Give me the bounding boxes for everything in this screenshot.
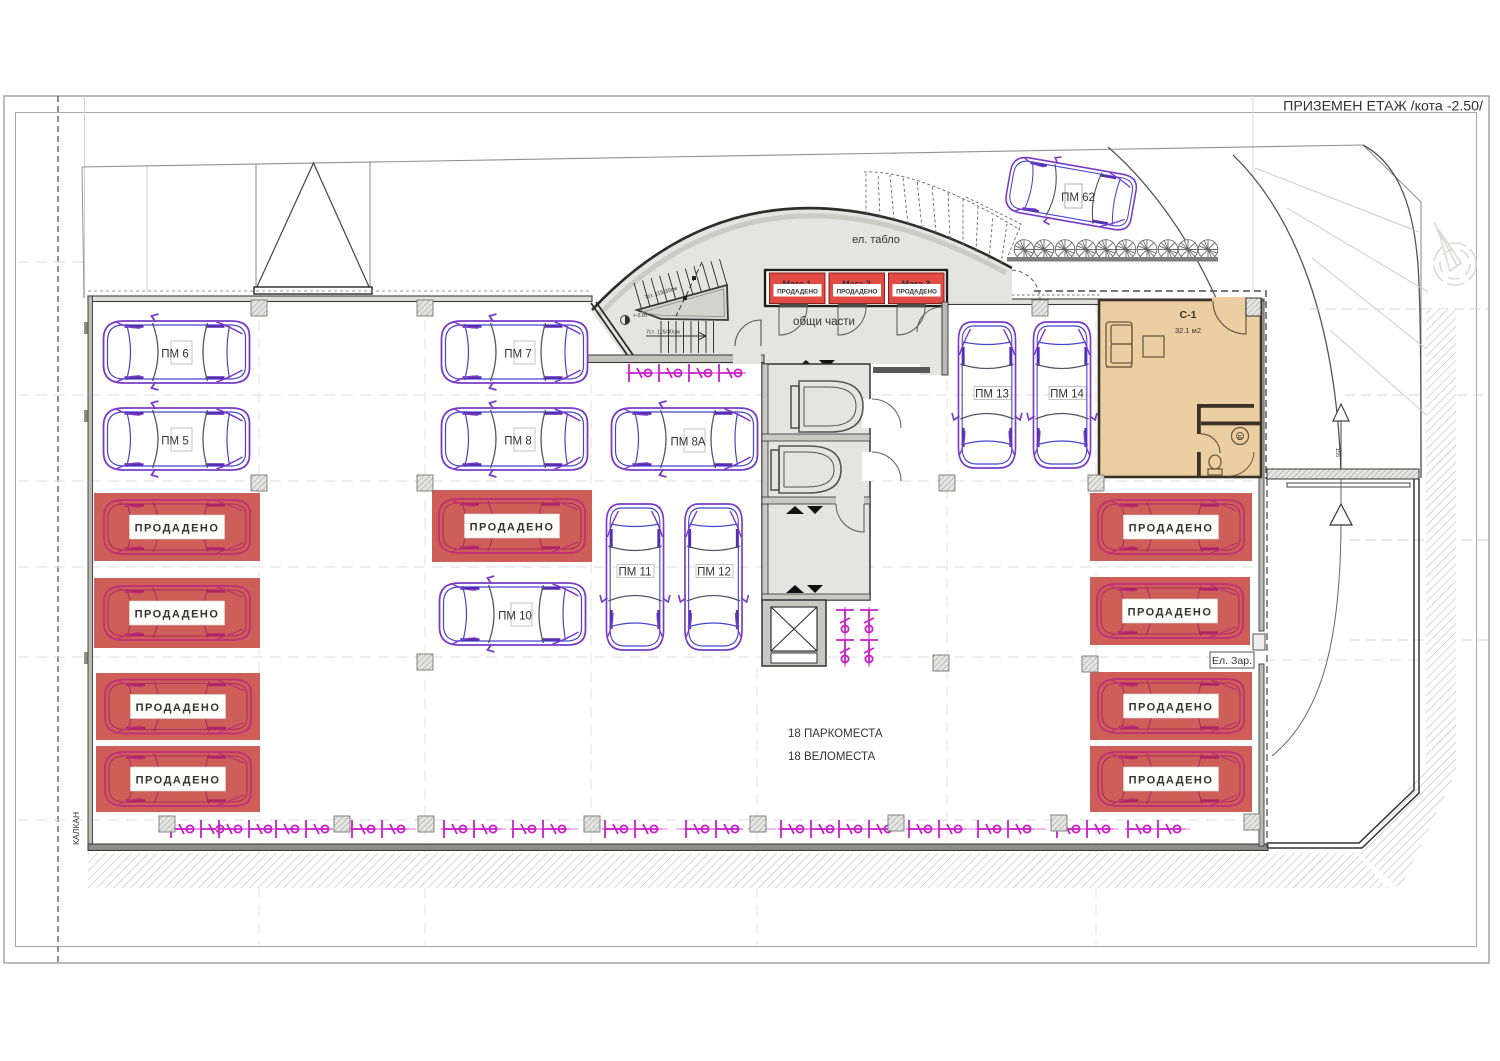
svg-text:ПМ 13: ПМ 13 [975, 389, 1009, 401]
svg-text:Ел. Зар.: Ел. Зар. [1212, 655, 1252, 667]
svg-text:ПРОДАДЕНО: ПРОДАДЕНО [135, 609, 220, 621]
svg-text:ПРОДАДЕНО: ПРОДАДЕНО [777, 289, 818, 296]
svg-text:ПМ 12: ПМ 12 [697, 567, 731, 579]
svg-text:7ст. 115/30см: 7ст. 115/30см [646, 330, 680, 336]
svg-text:КАЛКАН: КАЛКАН [71, 812, 81, 845]
svg-text:155: 155 [1334, 448, 1340, 457]
svg-text:ПРОДАДЕНО: ПРОДАДЕНО [136, 702, 221, 714]
svg-text:ПРОДАДЕНО: ПРОДАДЕНО [470, 522, 555, 534]
svg-text:ПМ 10: ПМ 10 [498, 611, 532, 623]
svg-text:+-0.00: +-0.00 [633, 313, 648, 319]
svg-text:ПРОДАДЕНО: ПРОДАДЕНО [896, 289, 937, 296]
svg-text:общи части: общи части [793, 316, 855, 328]
svg-text:ПРОДАДЕНО: ПРОДАДЕНО [1129, 775, 1214, 787]
svg-text:18 ВЕЛОМЕСТА: 18 ВЕЛОМЕСТА [788, 751, 876, 763]
svg-text:ПМ 62: ПМ 62 [1061, 192, 1095, 204]
svg-text:ПМ 6: ПМ 6 [161, 349, 188, 361]
svg-text:ПРИЗЕМЕН ЕТАЖ /кота -2.50/: ПРИЗЕМЕН ЕТАЖ /кота -2.50/ [1283, 99, 1483, 115]
svg-text:ПМ 8: ПМ 8 [504, 436, 531, 448]
svg-text:18 ПАРКОМЕСТА: 18 ПАРКОМЕСТА [788, 728, 883, 740]
svg-text:ПРОДАДЕНО: ПРОДАДЕНО [1128, 607, 1213, 619]
svg-text:ел. табло: ел. табло [852, 234, 900, 246]
svg-text:С-1: С-1 [1180, 309, 1197, 321]
svg-text:ПРОДАДЕНО: ПРОДАДЕНО [1129, 702, 1214, 714]
svg-text:ПМ 14: ПМ 14 [1050, 389, 1084, 401]
svg-text:Б: Б [1238, 435, 1243, 442]
svg-text:ПМ 7: ПМ 7 [504, 349, 531, 361]
svg-text:ПМ 5: ПМ 5 [161, 436, 188, 448]
svg-text:ПРОДАДЕНО: ПРОДАДЕНО [837, 289, 878, 296]
svg-text:ПМ 8А: ПМ 8А [670, 437, 705, 449]
svg-text:ПРОДАДЕНО: ПРОДАДЕНО [1129, 523, 1214, 535]
svg-text:ПРОДАДЕНО: ПРОДАДЕНО [135, 523, 220, 535]
svg-text:ПРОДАДЕНО: ПРОДАДЕНО [136, 775, 221, 787]
svg-text:ПМ 11: ПМ 11 [619, 567, 652, 579]
svg-text:32.1 м2: 32.1 м2 [1175, 326, 1201, 335]
